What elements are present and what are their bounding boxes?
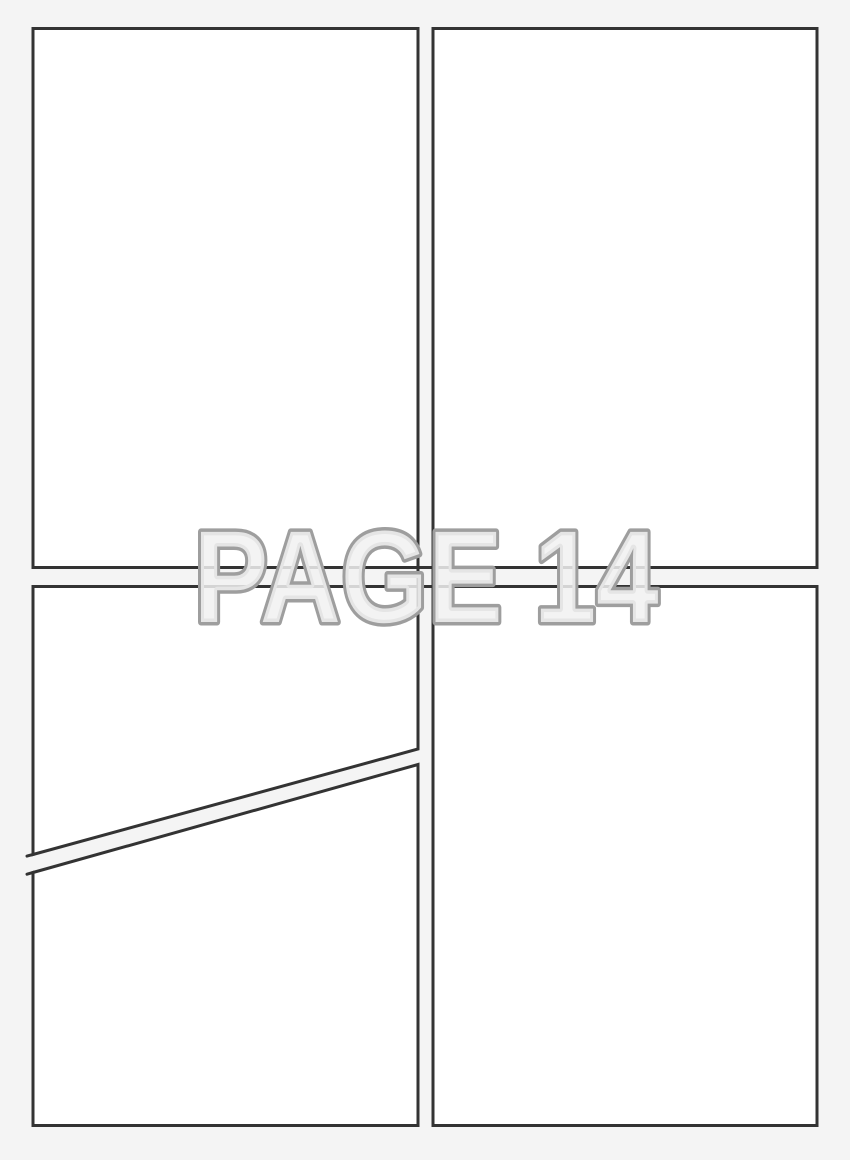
comic-page-template: PAGE 14 [0,0,850,1160]
panel-bottom-right [433,587,817,1126]
page-number-watermark: PAGE 14 [194,503,659,650]
panel-top-right [433,29,817,568]
panel-top-left [33,29,418,568]
comic-grid-svg: PAGE 14 [0,0,850,1160]
